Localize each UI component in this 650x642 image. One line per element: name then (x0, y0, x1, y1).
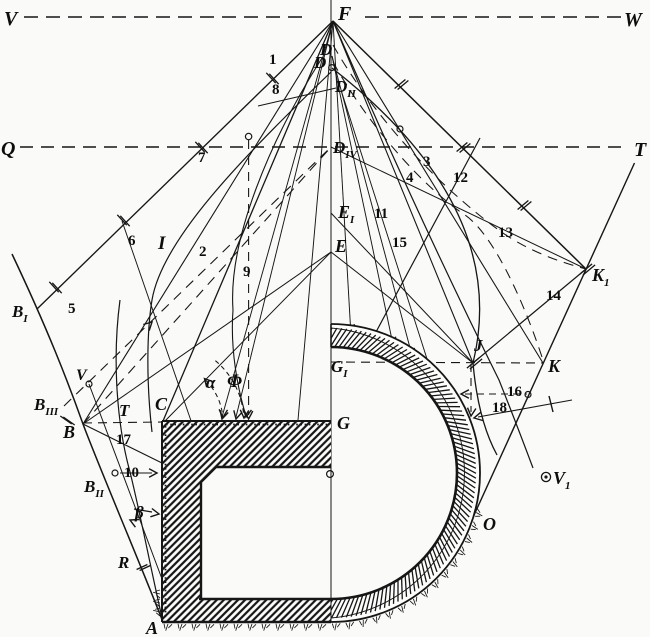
svg-text:B: B (62, 422, 75, 442)
svg-text:K: K (547, 356, 562, 376)
svg-text:V: V (4, 8, 19, 30)
svg-text:8: 8 (272, 82, 280, 98)
svg-text:4: 4 (406, 170, 414, 186)
svg-text:D: D (313, 53, 326, 72)
svg-text:A: A (145, 618, 158, 637)
svg-text:Q: Q (1, 138, 15, 160)
svg-text:I: I (157, 233, 166, 254)
svg-text:α: α (206, 373, 216, 392)
svg-text:J: J (473, 336, 483, 355)
svg-text:9: 9 (243, 264, 251, 280)
svg-text:2: 2 (199, 244, 207, 260)
svg-text:14: 14 (546, 288, 562, 304)
svg-text:G: G (337, 413, 350, 433)
svg-text:T: T (634, 139, 647, 161)
svg-text:1: 1 (269, 52, 277, 68)
svg-text:15: 15 (392, 235, 407, 251)
svg-text:16: 16 (507, 384, 523, 400)
svg-text:W: W (624, 9, 643, 31)
svg-text:6: 6 (128, 233, 136, 249)
svg-text:F: F (337, 3, 352, 25)
svg-text:Φ: Φ (227, 371, 242, 392)
svg-text:18: 18 (492, 400, 507, 416)
svg-text:13: 13 (498, 225, 513, 241)
svg-text:β: β (134, 503, 144, 522)
svg-text:12: 12 (453, 170, 468, 186)
svg-text:R: R (117, 553, 129, 572)
svg-text:V: V (76, 367, 88, 384)
svg-text:7: 7 (198, 150, 206, 166)
svg-text:10: 10 (124, 465, 139, 481)
svg-text:T: T (119, 401, 130, 420)
svg-text:O: O (483, 514, 496, 534)
svg-text:C: C (155, 394, 168, 414)
svg-text:E: E (334, 236, 347, 256)
svg-text:5: 5 (68, 301, 76, 317)
svg-text:17: 17 (116, 432, 132, 448)
svg-text:11: 11 (374, 206, 388, 222)
svg-text:3: 3 (423, 154, 431, 170)
